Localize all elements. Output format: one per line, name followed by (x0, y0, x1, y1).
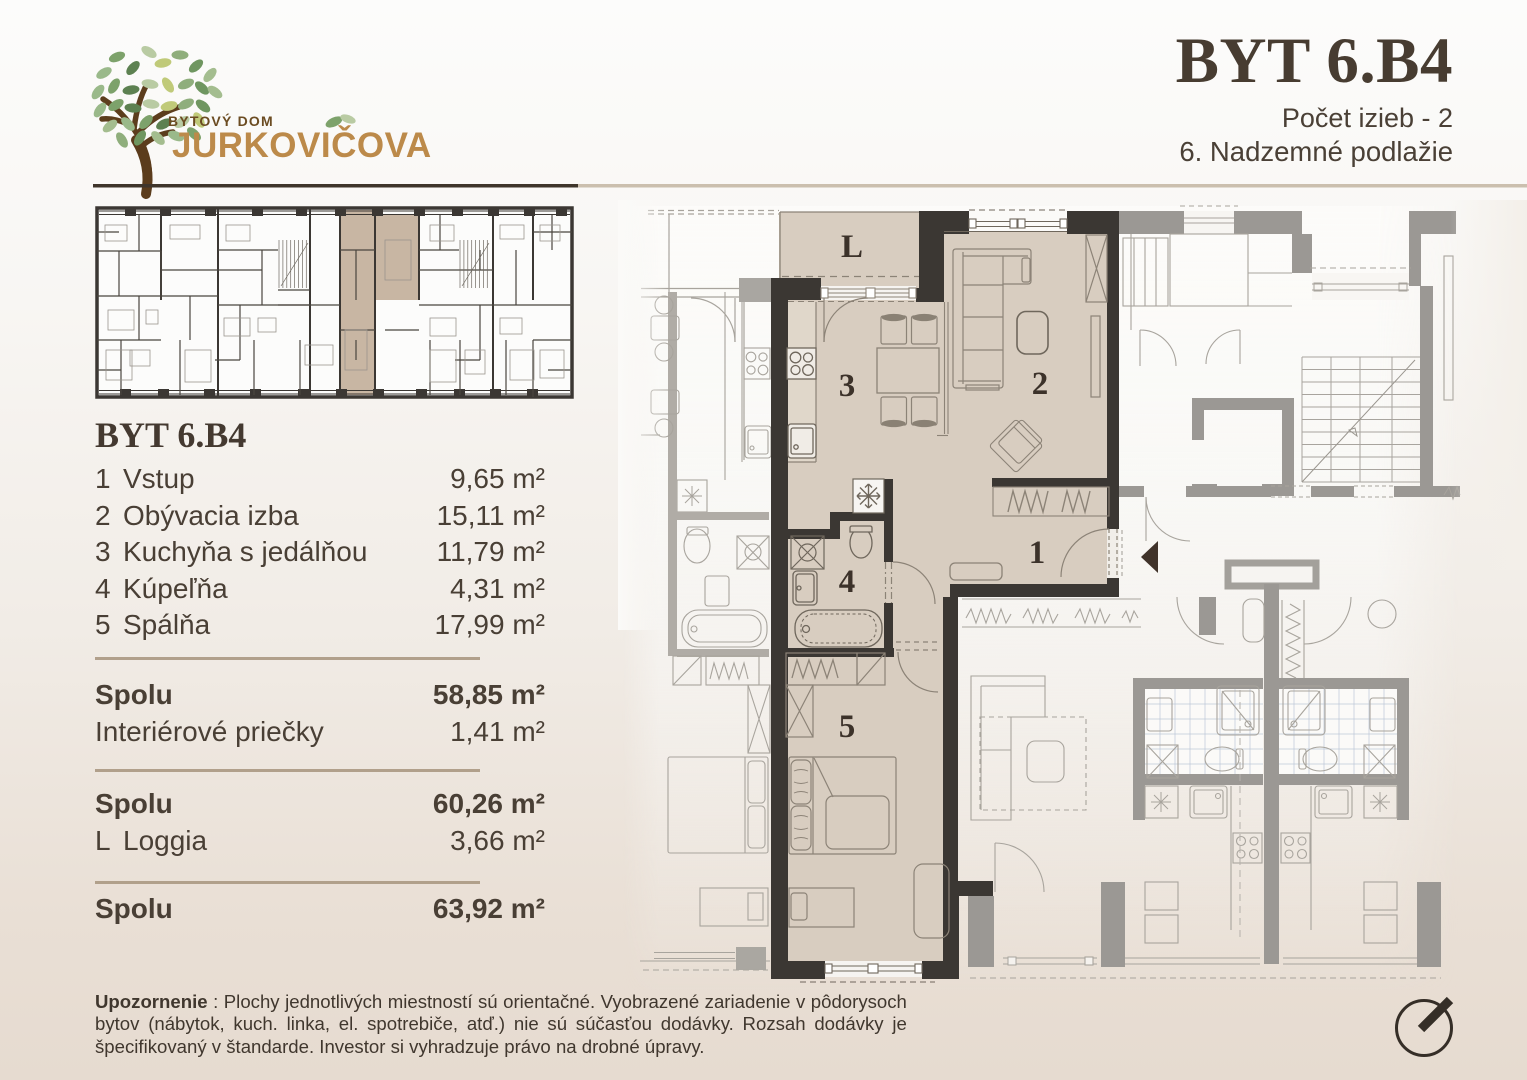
svg-text:2: 2 (1032, 366, 1049, 402)
svg-text:3: 3 (839, 368, 856, 404)
svg-text:JURKOVIČOVA: JURKOVIČOVA (172, 125, 432, 165)
svg-text:4: 4 (839, 564, 856, 600)
svg-text:L: L (841, 229, 863, 265)
svg-text:5: 5 (839, 709, 856, 745)
svg-text:1: 1 (1029, 535, 1046, 571)
